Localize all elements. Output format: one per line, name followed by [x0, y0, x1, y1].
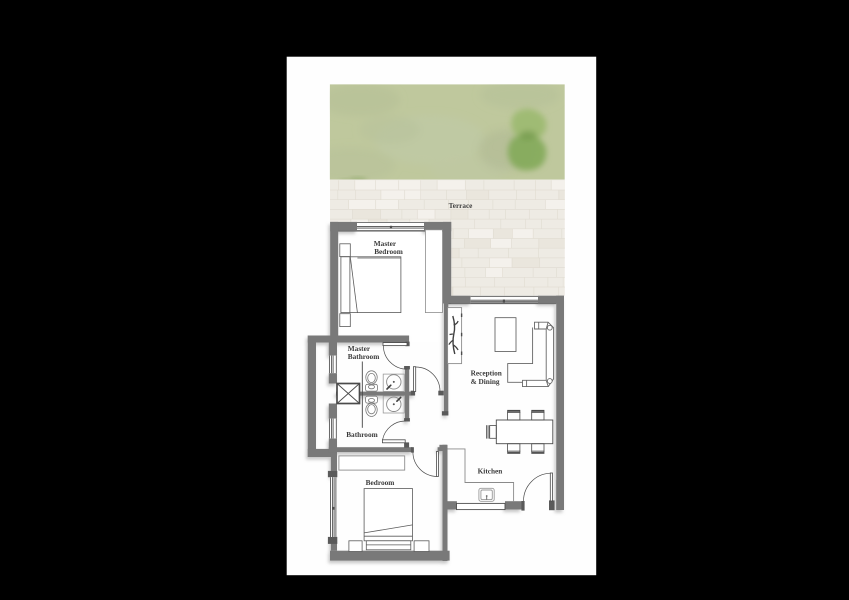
- svg-text:Bathroom: Bathroom: [346, 430, 378, 439]
- svg-text:Terrace: Terrace: [449, 202, 473, 210]
- svg-text:& Dining: & Dining: [471, 377, 500, 386]
- svg-text:Kitchen: Kitchen: [478, 467, 503, 476]
- svg-text:Bedroom: Bedroom: [366, 478, 395, 487]
- svg-text:Bedroom: Bedroom: [374, 247, 403, 256]
- svg-text:Bathroom: Bathroom: [348, 352, 380, 361]
